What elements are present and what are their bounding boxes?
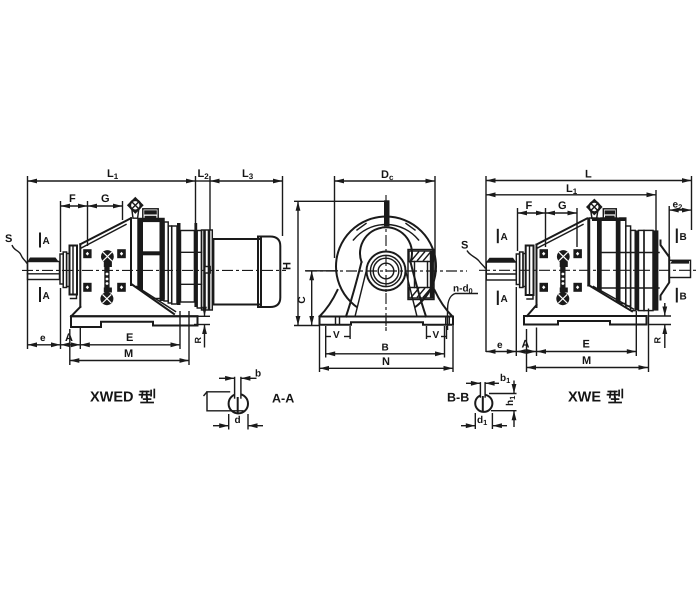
svg-text:B: B xyxy=(680,292,687,303)
svg-text:C: C xyxy=(297,296,308,303)
svg-text:A: A xyxy=(65,332,73,344)
svg-text:B: B xyxy=(680,232,687,243)
svg-text:F: F xyxy=(526,200,533,212)
svg-text:e: e xyxy=(497,340,503,351)
svg-text:E: E xyxy=(583,339,590,351)
svg-text:R: R xyxy=(653,337,663,344)
svg-text:R: R xyxy=(193,337,203,344)
svg-text:A: A xyxy=(522,339,530,351)
svg-text:V: V xyxy=(433,330,440,341)
svg-text:d: d xyxy=(235,415,241,426)
svg-text:H: H xyxy=(282,262,294,270)
svg-text:A: A xyxy=(501,294,508,305)
svg-text:E: E xyxy=(126,332,133,344)
svg-text:M: M xyxy=(582,355,591,367)
svg-text:V: V xyxy=(333,330,340,341)
svg-text:G: G xyxy=(558,200,567,212)
svg-text:A: A xyxy=(501,232,508,243)
svg-text:XWE: XWE xyxy=(568,390,601,406)
svg-text:A: A xyxy=(43,291,50,302)
svg-text:e: e xyxy=(40,333,46,344)
svg-text:B: B xyxy=(382,343,389,354)
svg-text:N: N xyxy=(382,356,390,368)
svg-text:F: F xyxy=(69,193,76,205)
svg-text:L: L xyxy=(585,169,592,181)
svg-text:B-B: B-B xyxy=(447,391,469,405)
svg-text:G: G xyxy=(101,193,110,205)
svg-text:M: M xyxy=(124,348,133,360)
svg-text:S: S xyxy=(5,233,12,245)
svg-text:A-A: A-A xyxy=(272,392,294,406)
svg-text:S: S xyxy=(461,240,468,252)
svg-text:b: b xyxy=(255,369,261,380)
svg-text:A: A xyxy=(43,236,50,247)
svg-text:XWED: XWED xyxy=(90,390,134,406)
